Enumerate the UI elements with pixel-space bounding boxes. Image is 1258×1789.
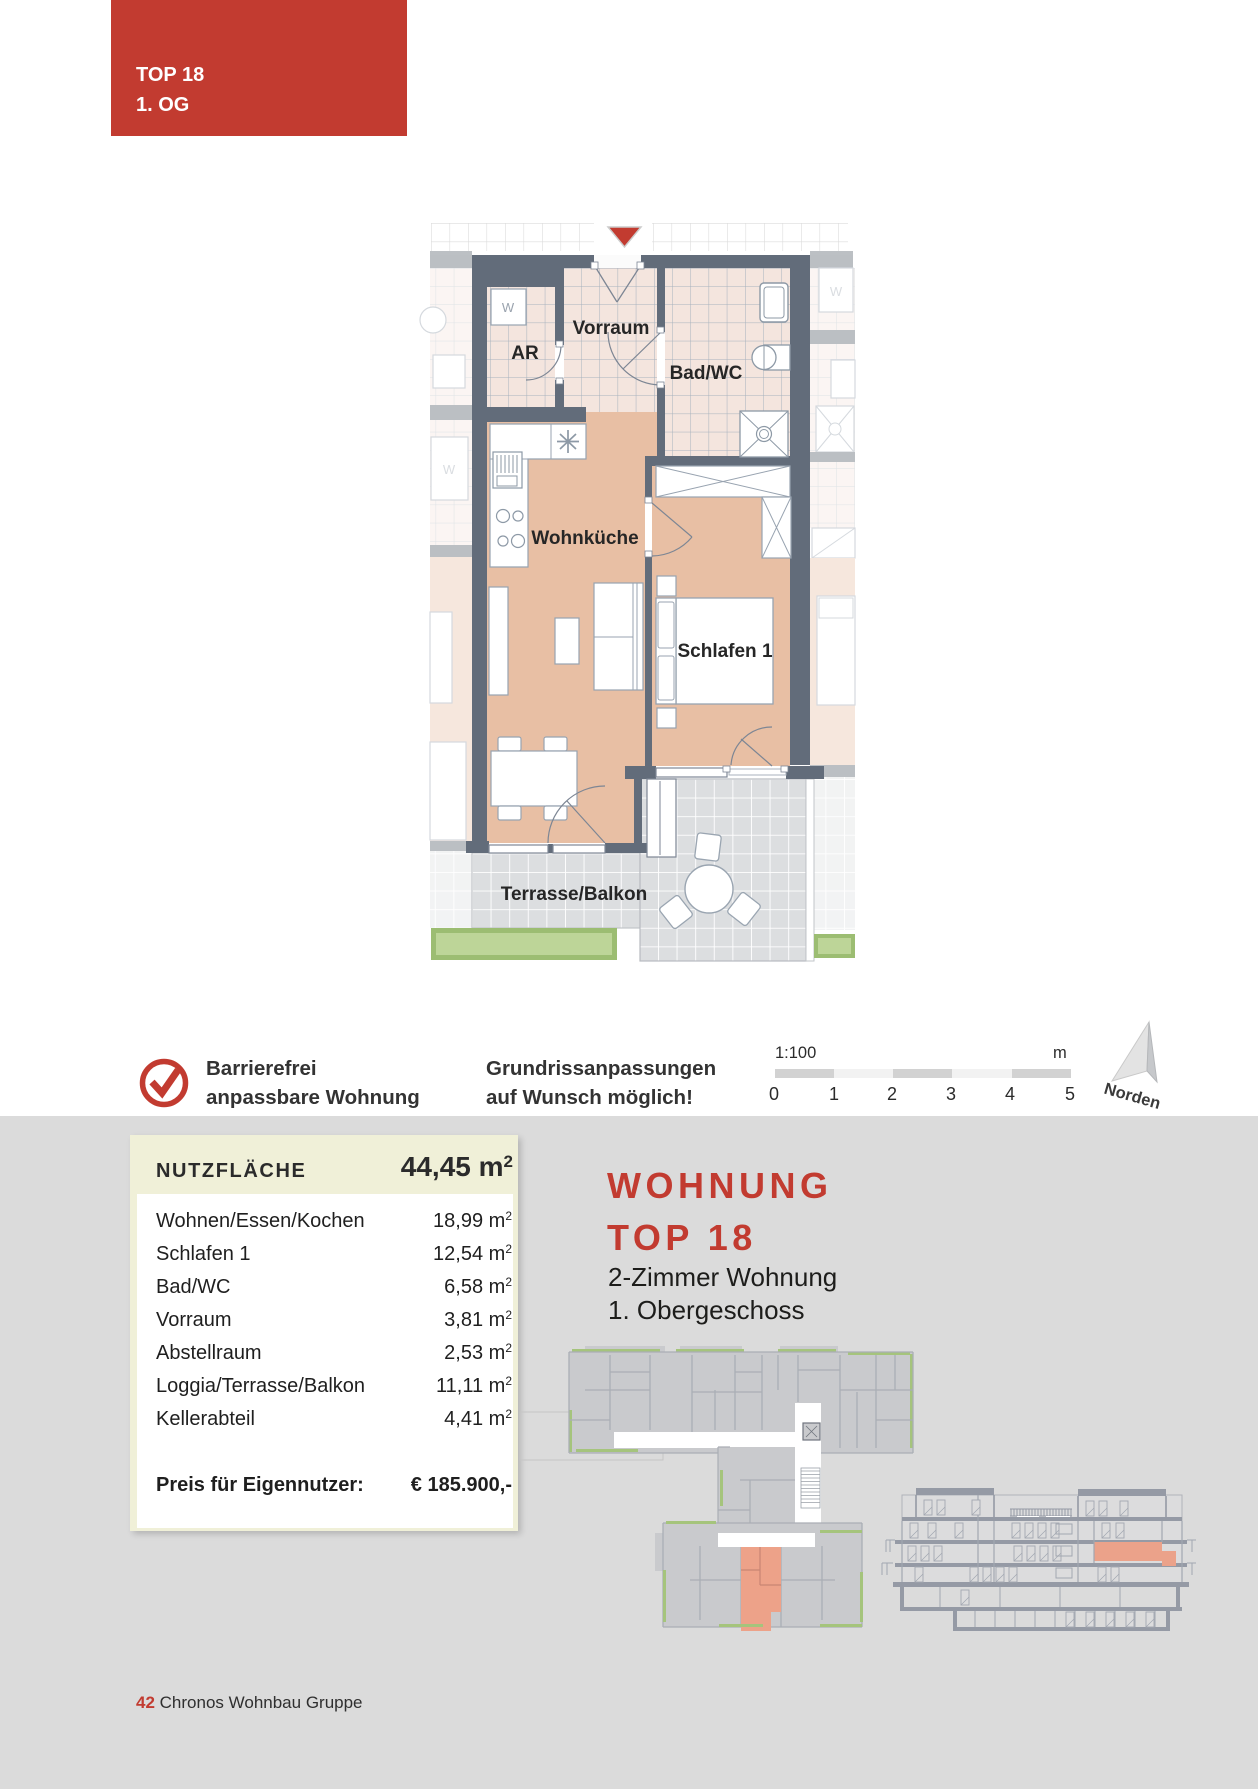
svg-text:Schlafen 1: Schlafen 1 [677,641,772,662]
svg-text:W: W [443,462,456,477]
svg-text:W: W [830,284,843,299]
svg-text:Vorraum: Vorraum [573,318,650,339]
svg-text:AR: AR [511,343,539,364]
svg-text:Wohnküche: Wohnküche [531,528,638,549]
svg-text:Bad/WC: Bad/WC [670,363,743,384]
svg-text:Norden: Norden [1102,1080,1162,1113]
svg-text:Terrasse/Balkon: Terrasse/Balkon [501,884,647,905]
svg-text:W: W [502,300,515,315]
